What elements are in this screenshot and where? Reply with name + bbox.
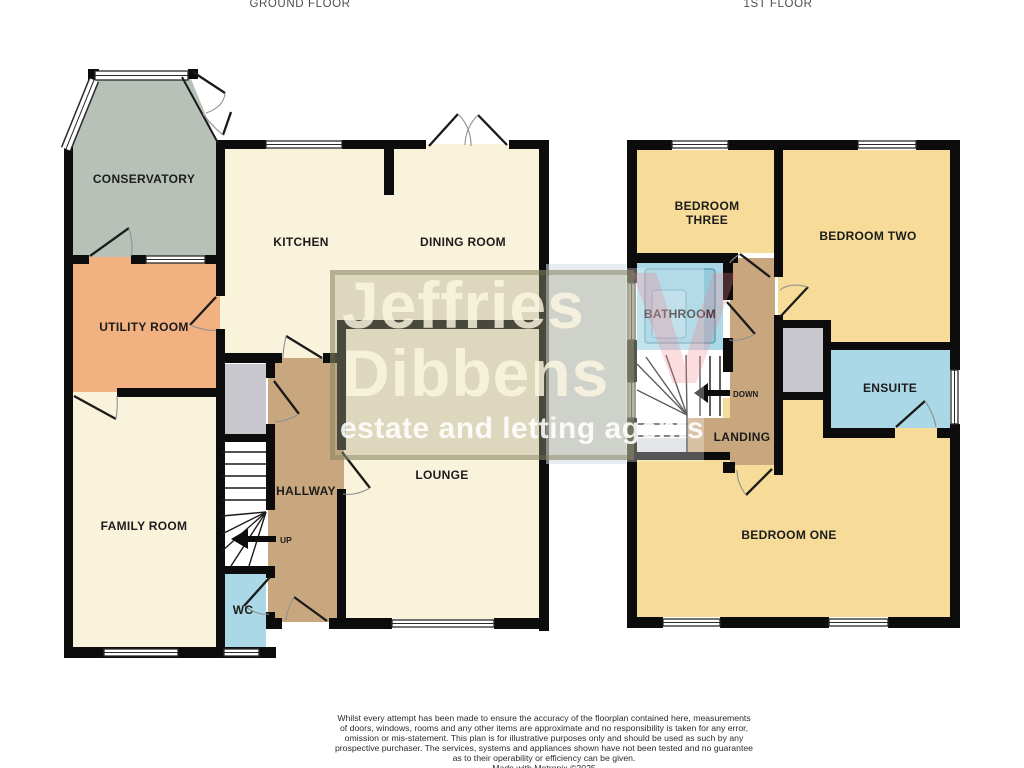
window bbox=[104, 649, 178, 656]
ground-floor-plan: CONSERVATORY UTILITY ROOM FAMILY ROOM KI… bbox=[64, 69, 549, 658]
landing-label: LANDING bbox=[714, 430, 771, 444]
up-label: UP bbox=[280, 535, 292, 545]
window bbox=[392, 620, 494, 627]
lounge-label: LOUNGE bbox=[415, 468, 468, 482]
room-bedroom-two bbox=[778, 150, 950, 342]
window bbox=[829, 619, 888, 626]
floorplan-drawing: CONSERVATORY UTILITY ROOM FAMILY ROOM KI… bbox=[0, 0, 1024, 768]
floorplan-page: GROUND FLOOR 1ST FLOOR bbox=[0, 0, 1024, 768]
disclaimer-line: prospective purchaser. The services, sys… bbox=[264, 743, 824, 753]
cupboard-first bbox=[783, 327, 823, 392]
conservatory-label: CONSERVATORY bbox=[93, 172, 195, 186]
disclaimer-line: of doors, windows, rooms and any other i… bbox=[264, 723, 824, 733]
disclaimer-line: omission or mis-statement. This plan is … bbox=[264, 733, 824, 743]
window bbox=[951, 370, 958, 424]
disclaimer-line: as to their operability or efficiency ca… bbox=[264, 753, 824, 763]
ensuite-label: ENSUITE bbox=[863, 381, 917, 395]
bathroom-label: BATHROOM bbox=[644, 307, 716, 321]
bedroom-two-label: BEDROOM TWO bbox=[819, 229, 916, 243]
window bbox=[146, 256, 205, 263]
first-floor-plan: BEDROOM THREE BEDROOM TWO BATHROOM ENSUI… bbox=[627, 140, 960, 628]
dining-room-label: DINING ROOM bbox=[420, 235, 506, 249]
window bbox=[628, 283, 635, 340]
window bbox=[672, 141, 728, 148]
disclaimer-text: Whilst every attempt has been made to en… bbox=[264, 713, 824, 768]
window bbox=[663, 619, 720, 626]
disclaimer-line: Whilst every attempt has been made to en… bbox=[264, 713, 824, 723]
utility-room-label: UTILITY ROOM bbox=[99, 320, 188, 334]
cupboard-ground bbox=[220, 364, 266, 436]
window bbox=[95, 71, 188, 80]
bedroom-three-label-line1: BEDROOM bbox=[675, 199, 740, 213]
window bbox=[266, 141, 342, 148]
family-room-label: FAMILY ROOM bbox=[101, 519, 188, 533]
disclaimer-line: Made with Metropix ©2025 bbox=[264, 763, 824, 768]
down-label: DOWN bbox=[733, 390, 759, 399]
hallway-label: HALLWAY bbox=[276, 484, 336, 498]
stair-half-landing bbox=[637, 438, 688, 452]
window bbox=[628, 382, 635, 418]
window bbox=[858, 141, 916, 148]
window bbox=[224, 649, 259, 656]
kitchen-label: KITCHEN bbox=[273, 235, 328, 249]
wc-label: WC bbox=[233, 603, 254, 617]
bedroom-one-label: BEDROOM ONE bbox=[741, 528, 836, 542]
bedroom-three-label-line2: THREE bbox=[686, 213, 728, 227]
